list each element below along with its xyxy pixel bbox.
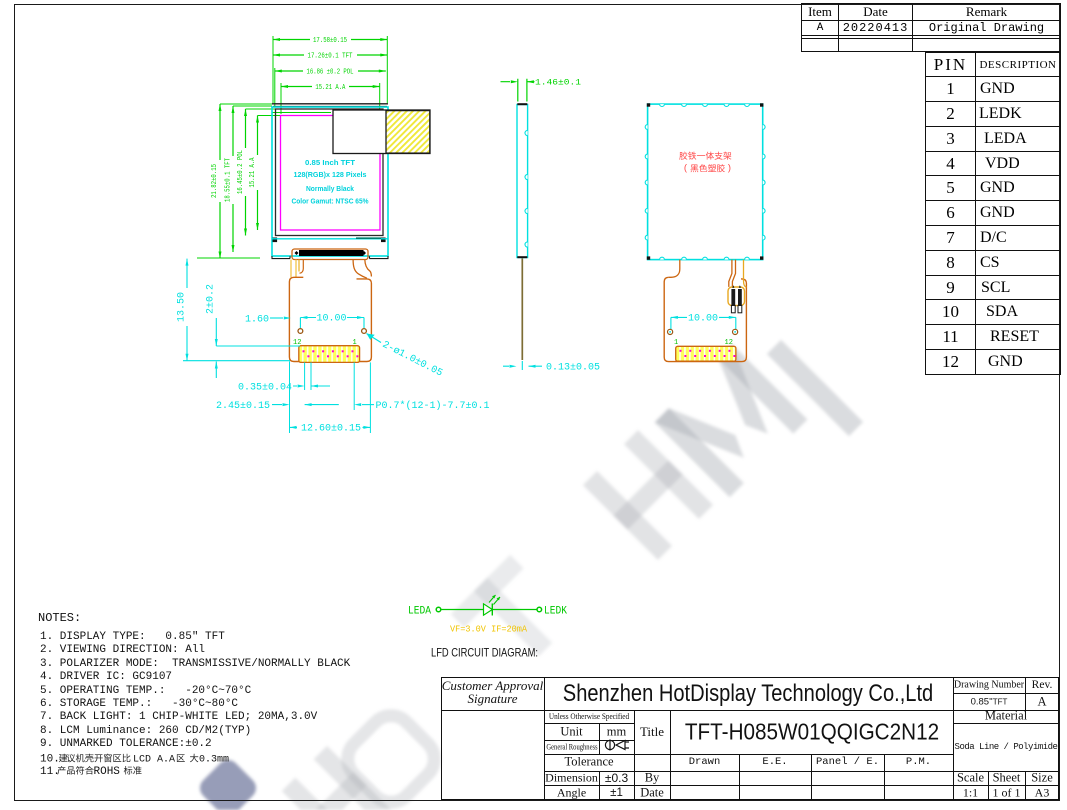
svg-text:LCD A.A: LCD A.A [133,755,175,766]
svg-text:Normally Black: Normally Black [306,184,355,193]
svg-text:(: ( [683,164,688,174]
svg-text:15.21 A.A: 15.21 A.A [249,157,257,187]
svg-text:ROHS: ROHS [94,766,121,778]
svg-text:13.50: 13.50 [177,292,188,322]
svg-text:16.86 ±0.2 POL: 16.86 ±0.2 POL [307,69,354,77]
svg-text:1.60: 1.60 [245,315,269,326]
svg-text:2-ø1.0±0.05: 2-ø1.0±0.05 [380,340,444,380]
svg-text:1.46±0.1: 1.46±0.1 [535,78,581,88]
svg-text:LEDK: LEDK [544,606,567,618]
svg-text:Color Gamut: NTSC 65%: Color Gamut: NTSC 65% [292,197,369,206]
svg-text:15.21 A.A: 15.21 A.A [315,84,345,92]
svg-text:17.26±0.1 TFT: 17.26±0.1 TFT [308,53,353,61]
svg-text:128(RGB)x 128 Pixels: 128(RGB)x 128 Pixels [294,170,367,179]
svg-text:11.: 11. [40,766,60,778]
svg-text:2.45±0.15: 2.45±0.15 [216,401,270,412]
svg-text:12.60±0.15: 12.60±0.15 [301,424,361,435]
svg-text:16.45±0.2 POL: 16.45±0.2 POL [237,150,245,194]
svg-text:P0.7*(12-1)-7.7±0.1: P0.7*(12-1)-7.7±0.1 [376,400,490,412]
svg-text:10.: 10. [40,754,60,766]
svg-text:10.00: 10.00 [316,314,346,325]
svg-text:10.00: 10.00 [688,313,718,324]
svg-text:21.82±0.15: 21.82±0.15 [211,164,219,198]
svg-text:0.35±0.04: 0.35±0.04 [238,383,292,394]
svg-text:LEDA: LEDA [408,606,431,618]
svg-text:0.85 Inch TFT: 0.85 Inch TFT [305,158,355,167]
svg-text:17.58±0.15: 17.58±0.15 [313,37,347,45]
svg-text:): ) [727,164,732,174]
svg-text:2±0.2: 2±0.2 [206,284,217,314]
svg-text:LFD CIRCUIT DIAGRAM:: LFD CIRCUIT DIAGRAM: [431,646,538,660]
svg-text:VF=3.0V IF=20mA: VF=3.0V IF=20mA [450,624,527,635]
svg-text:0.3mm: 0.3mm [199,755,229,766]
svg-text:18.55±0.1 TFT: 18.55±0.1 TFT [225,158,233,202]
svg-text:0.13±0.05: 0.13±0.05 [546,363,600,374]
